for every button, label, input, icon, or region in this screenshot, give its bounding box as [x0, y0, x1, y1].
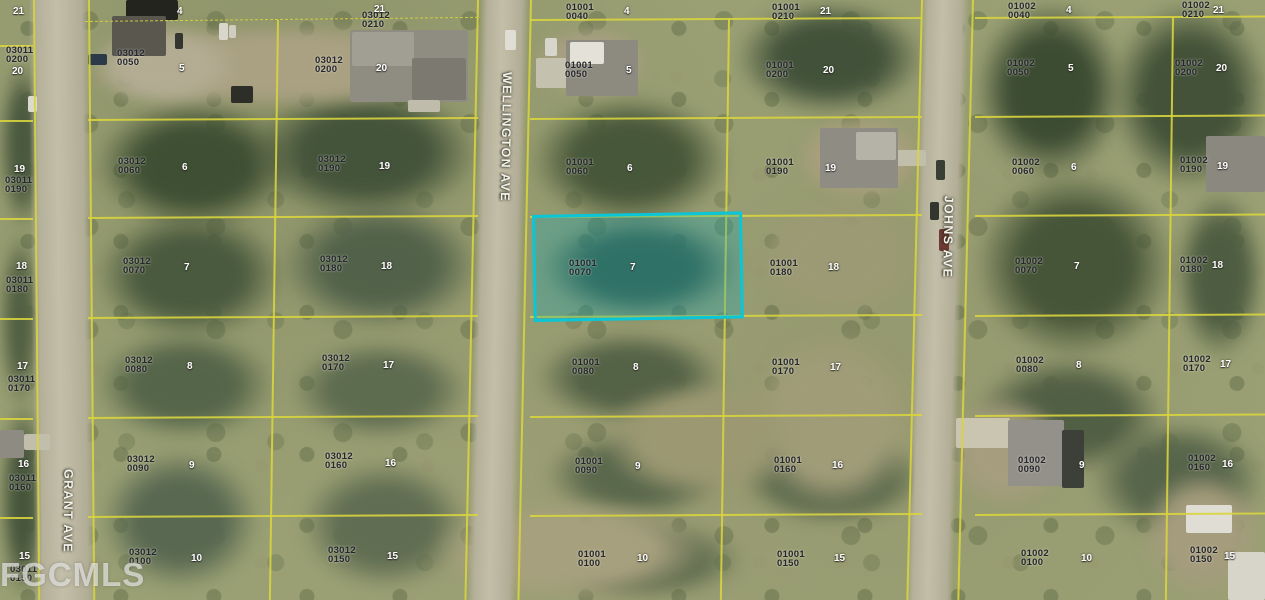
parcel-label: 010020180 [1180, 257, 1208, 274]
parcel-label: 010020100 [1021, 550, 1049, 567]
lot-number: 18 [1212, 260, 1223, 271]
lot-number: 5 [179, 63, 185, 74]
road-johns-ave [906, 0, 969, 600]
parcel-label: 030120170 [322, 355, 350, 372]
parcel-label: 010010210 [772, 4, 800, 21]
lot-number: 21 [374, 4, 385, 15]
tree-cluster [975, 0, 1125, 180]
parcel-label: 030110180 [6, 277, 33, 294]
clearing [1140, 470, 1265, 600]
parcel-label: 030120090 [127, 456, 155, 473]
parcel-label: 010010050 [565, 62, 593, 79]
lot-number: 7 [630, 262, 636, 273]
lot-number: 10 [1081, 553, 1092, 564]
parcel-label: 010010090 [575, 458, 603, 475]
parcel-label: 010010160 [774, 457, 802, 474]
lot-number: 4 [1066, 5, 1072, 16]
parcel-label: 030120190 [318, 156, 346, 173]
lot-number: 6 [1071, 162, 1077, 173]
tree-cluster [95, 330, 275, 440]
clearing [600, 380, 800, 500]
parcel-label: 010010080 [572, 359, 600, 376]
lot-number: 15 [387, 551, 398, 562]
parcel-boundary-line [0, 517, 33, 519]
parcel-label: 010020040 [1008, 3, 1036, 20]
clearing [945, 395, 1067, 510]
lot-number: 20 [12, 66, 23, 77]
lot-number: 8 [187, 361, 193, 372]
parcel-label: 030120050 [117, 50, 145, 67]
tree-cluster [1175, 190, 1265, 360]
parcel-label-highlighted: 010010070 [569, 260, 597, 277]
street-name-label: WELLINGTON AVE [498, 72, 514, 202]
lot-number: 10 [637, 553, 648, 564]
parcel-label: 010020210 [1182, 2, 1210, 19]
lot-number: 10 [191, 553, 202, 564]
parcel-label: 010010060 [566, 159, 594, 176]
lot-number: 21 [1213, 5, 1224, 16]
lot-number: 7 [184, 262, 190, 273]
house-roof [1008, 420, 1064, 486]
parcel-label: 010010190 [766, 159, 794, 176]
parcel-label: 030110190 [5, 177, 32, 194]
parcel-label: 030110200 [6, 47, 33, 64]
lot-number: 5 [626, 65, 632, 76]
parcel-label: 010020200 [1175, 60, 1203, 77]
highlighted-parcel-outline [532, 211, 744, 322]
parcel-boundary-line [975, 413, 1265, 416]
parcel-boundary-line [85, 17, 478, 22]
parcel-label: 010020090 [1018, 457, 1046, 474]
clearing [88, 24, 240, 108]
parcel-label: 010020080 [1016, 357, 1044, 374]
parcel-boundary-line [530, 116, 922, 120]
parcel-boundary-line [88, 415, 478, 419]
vehicle [88, 54, 107, 65]
lot-number: 20 [376, 63, 387, 74]
tree-cluster [300, 460, 470, 590]
parcel-label: 010010180 [770, 260, 798, 277]
lot-number: 19 [14, 164, 25, 175]
mls-watermark: FGCMLS [0, 556, 145, 594]
parcel-boundary-line [88, 117, 478, 121]
parcel-boundary-line [0, 418, 33, 420]
lot-number: 6 [182, 162, 188, 173]
lot-number: 17 [1220, 359, 1231, 370]
house-roof [856, 132, 896, 160]
lot-number: 9 [1079, 460, 1085, 471]
street-name-label: GRANT AVE [61, 466, 76, 556]
parcel-label: 010020070 [1015, 258, 1043, 275]
street-name-label: JOHNS AVE [940, 192, 956, 282]
lot-number: 17 [17, 361, 28, 372]
lot-number: 9 [635, 461, 641, 472]
parcel-boundary-line [269, 20, 279, 600]
lot-number: 5 [1068, 63, 1074, 74]
parcel-label: 030120150 [328, 547, 356, 564]
house-roof [412, 58, 466, 100]
vehicle [175, 33, 183, 49]
lot-number: 16 [385, 458, 396, 469]
parcel-label: 030120180 [320, 256, 348, 273]
lot-number: 15 [1224, 551, 1235, 562]
parcel-boundary-line [975, 114, 1265, 117]
parcel-boundary-line [530, 513, 922, 517]
pool-enclosure [1062, 430, 1084, 488]
clearing [95, 22, 480, 110]
tree-cluster [735, 0, 925, 115]
parcel-label: 030120060 [118, 158, 146, 175]
parcel-boundary-line [88, 315, 478, 319]
parcel-label: 010010150 [777, 551, 805, 568]
house-roof [820, 128, 898, 188]
tree-cluster [290, 340, 470, 440]
lot-number: 20 [823, 65, 834, 76]
lot-number: 19 [825, 163, 836, 174]
house-roof [350, 30, 468, 102]
house-roof [0, 430, 24, 458]
parcel-label: 010020060 [1012, 159, 1040, 176]
lot-number: 8 [1076, 360, 1082, 371]
parcel-label: 010010100 [578, 551, 606, 568]
parcel-label: 010020160 [1188, 455, 1216, 472]
lot-number: 18 [16, 261, 27, 272]
lot-number: 16 [18, 459, 29, 470]
lot-number: 8 [633, 362, 639, 373]
lot-number: 16 [832, 460, 843, 471]
shed-roof [231, 86, 253, 103]
tree-cluster [1090, 420, 1265, 540]
tree-cluster [740, 430, 925, 525]
parcel-boundary-line [88, 514, 478, 518]
building-roof [126, 0, 178, 20]
lot-number: 6 [627, 163, 633, 174]
parcel-label: 030110160 [9, 475, 36, 492]
house-roof [1186, 505, 1232, 533]
vehicle [219, 23, 228, 40]
tree-cluster [975, 355, 1165, 475]
parcel-boundary-line [975, 313, 1265, 316]
lot-number: 21 [13, 6, 24, 17]
parcel-boundary-line [1165, 17, 1174, 600]
parcel-boundary-line [0, 218, 33, 220]
lot-number: 4 [624, 6, 630, 17]
lot-number: 4 [177, 6, 183, 17]
lot-number: 16 [1222, 459, 1233, 470]
parcel-label: 030110170 [8, 376, 35, 393]
vehicle [229, 25, 236, 38]
parcel-label: 010020150 [1190, 547, 1218, 564]
tree-cluster [530, 95, 730, 225]
tree-cluster [545, 430, 725, 520]
lot-number: 19 [379, 161, 390, 172]
house-roof [1206, 136, 1265, 192]
house-roof [352, 32, 414, 66]
parcel-label: 010010040 [566, 4, 594, 21]
aerial-parcel-map: FGCMLS 030110200200301101901903011018018… [0, 0, 1265, 600]
road-wellington-ave [467, 0, 529, 600]
tree-cluster [280, 200, 480, 330]
parcel-label: 010020050 [1007, 60, 1035, 77]
lot-number: 7 [1074, 261, 1080, 272]
tree-cluster [250, 85, 480, 220]
parcel-label: 030120160 [325, 453, 353, 470]
lot-number: 18 [828, 262, 839, 273]
lot-number: 20 [1216, 63, 1227, 74]
lot-number: 19 [1217, 161, 1228, 172]
parcel-label: 010020190 [1180, 157, 1208, 174]
lot-number: 9 [189, 460, 195, 471]
parcel-label: 030120080 [125, 357, 153, 374]
driveway [956, 418, 1010, 448]
parcel-label: 030120070 [123, 258, 151, 275]
lot-number: 17 [383, 360, 394, 371]
parcel-label: 030120200 [315, 57, 343, 74]
parcel-label: 010010200 [766, 62, 794, 79]
parcel-label: 010010170 [772, 359, 800, 376]
driveway [408, 100, 440, 112]
clearing [795, 115, 925, 200]
lot-number: 18 [381, 261, 392, 272]
lot-number: 21 [820, 6, 831, 17]
vehicle [545, 38, 557, 56]
lot-number: 17 [830, 362, 841, 373]
parcel-boundary-line [975, 213, 1265, 216]
parcel-boundary-line [975, 512, 1265, 515]
parcel-boundary-line [88, 215, 478, 219]
parcel-boundary-line [0, 318, 33, 320]
parcel-boundary-line [530, 414, 922, 418]
parcel-label: 010020170 [1183, 356, 1211, 373]
lot-number: 15 [834, 553, 845, 564]
parcel-boundary-line [0, 120, 33, 122]
tree-cluster [535, 330, 725, 425]
